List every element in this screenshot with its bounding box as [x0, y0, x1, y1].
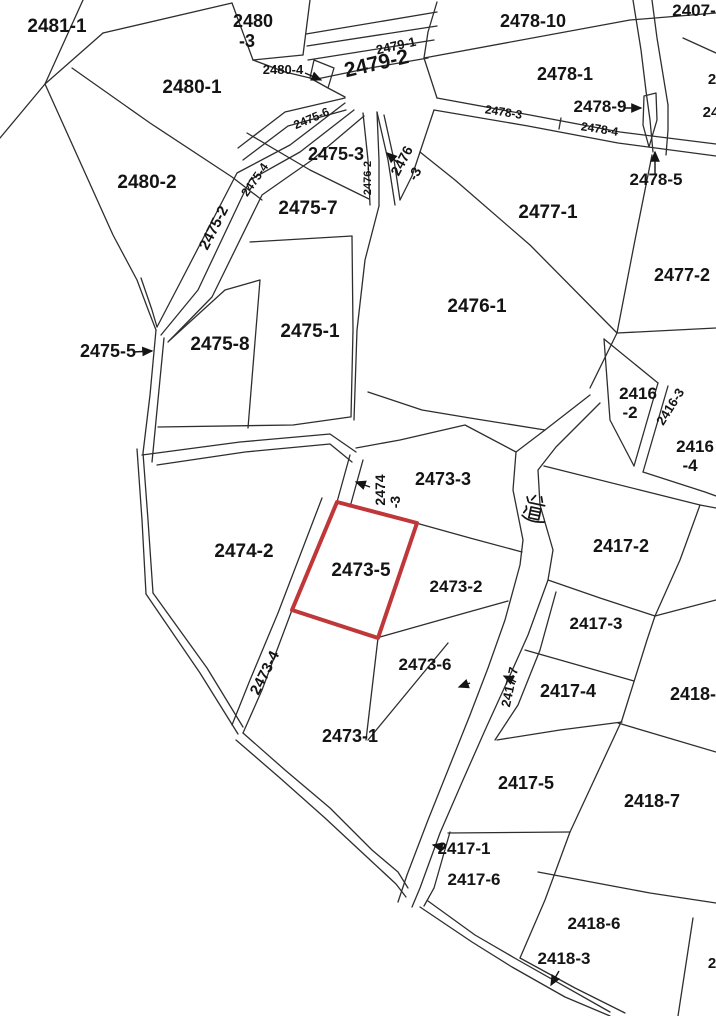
parcel-label-2474-3: -3 [387, 496, 403, 509]
parcel-label-2418-3: 2418-3 [538, 949, 591, 968]
parcel-label-2478-4: 2478-4 [580, 119, 619, 139]
parcel-label-2475-7: 2475-7 [278, 198, 337, 219]
parcel-label-2417-7: 2417-7 [498, 666, 521, 709]
parcel-label-2416-3: 2416-3 [653, 385, 687, 427]
parcel-label-2473-4: 2473-4 [247, 648, 284, 698]
parcel-label-2417-3: 2417-3 [570, 614, 623, 633]
parcel-label-2417-6: 2417-6 [448, 870, 501, 889]
parcel-label-2481-1: 2481-1 [27, 16, 87, 37]
parcel-label-edge-partial-b: 24 [703, 104, 716, 121]
parcel-label-edge-partial-a: 2 [708, 71, 716, 88]
parcel-label-2473-5: 2473-5 [331, 560, 391, 581]
parcel-label-2473-2: 2473-2 [430, 577, 483, 596]
parcel-label-2478-5: 2478-5 [630, 170, 683, 189]
parcel-label-2473-1: 2473-1 [322, 726, 378, 746]
leader-arrow-road-mark [459, 683, 470, 687]
parcel-label-2416-2: -2 [622, 403, 637, 422]
parcel-label-2416-4: -4 [682, 456, 698, 475]
parcel-label-2475-4: 2475-4 [238, 160, 271, 199]
parcel-label-2417-5: 2417-5 [498, 773, 554, 793]
parcel-label-2418-1: 2418-1 [670, 684, 716, 704]
parcel-label-2473-6: 2473-6 [399, 655, 452, 674]
leader-arrow-2474-3 [356, 482, 370, 487]
parcel-label-2478-1: 2478-1 [537, 64, 593, 84]
parcel-label-2475-5: 2475-5 [80, 341, 136, 361]
parcel-label-2478-10: 2478-10 [500, 11, 566, 31]
parcel-label-2476-2: 2476-2 [362, 161, 374, 195]
parcel-label-2480-1: 2480-1 [162, 77, 222, 98]
map-canvas: 2481-12480-32480-12480-42480-22479-12479… [0, 0, 716, 1016]
parcel-label-2418-7: 2418-7 [624, 791, 680, 811]
parcel-label-2477-1: 2477-1 [518, 202, 578, 223]
parcel-label-2473-3: 2473-3 [415, 469, 471, 489]
parcel-label-2477-2: 2477-2 [654, 265, 710, 285]
parcel-label-2474-3: 2474 [372, 474, 388, 505]
parcel-labels: 2481-12480-32480-12480-42480-22479-12479… [27, 1, 716, 972]
parcel-label-edge-partial-c: 2 [708, 955, 716, 972]
parcel-label-2480-4: 2480-4 [263, 62, 304, 77]
parcel-label-2480-3: 2480 [233, 11, 273, 31]
parcel-label-2480-2: 2480-2 [117, 172, 176, 193]
parcel-label-2474-2: 2474-2 [214, 541, 273, 562]
parcel-label-2417-4: 2417-4 [540, 681, 596, 701]
parcel-label-2480-3: -3 [239, 31, 255, 51]
parcel-label-2407: 2407- [672, 1, 715, 20]
parcel-label-2418-6: 2418-6 [568, 914, 621, 933]
parcel-label-2475-8: 2475-8 [190, 334, 249, 355]
parcel-label-2416-4: 2416 [676, 437, 714, 456]
cadastral-map: 2481-12480-32480-12480-42480-22479-12479… [0, 0, 716, 1016]
parcel-label-2417-2: 2417-2 [593, 536, 649, 556]
parcel-label-2416-2: 2416 [619, 384, 657, 403]
parcel-label-2476-1: 2476-1 [447, 296, 507, 317]
parcel-label-2475-3: 2475-3 [308, 144, 364, 164]
parcel-label-2478-9: 2478-9 [574, 97, 627, 116]
road-kanji-label [521, 494, 549, 524]
parcel-label-2476-3: -3 [405, 164, 425, 183]
parcel-label-2475-1: 2475-1 [280, 321, 340, 342]
leader-arrow-2475-5 [133, 351, 152, 352]
